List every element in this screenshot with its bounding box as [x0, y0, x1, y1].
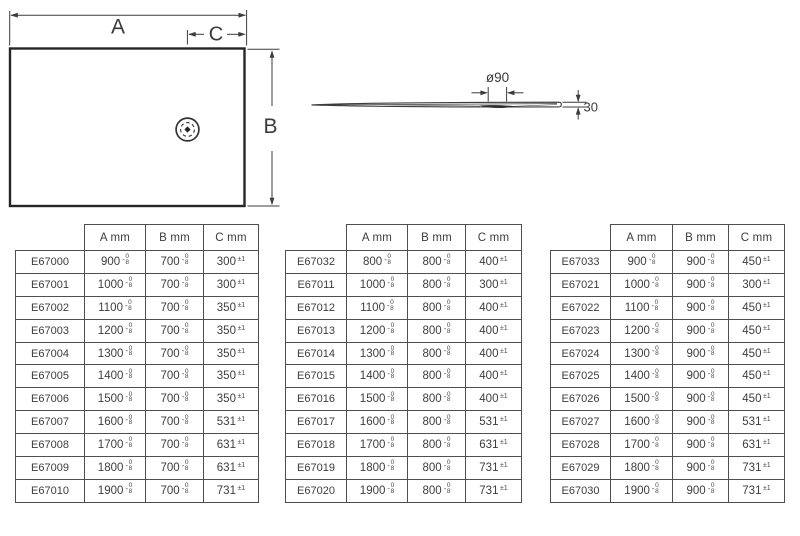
dim-b-value: 800-08 [408, 365, 466, 388]
dim-c-value: 731±1 [729, 479, 785, 502]
tolerance-0-minus-8: -08 [652, 277, 659, 288]
product-code: E67016 [286, 388, 347, 411]
tolerance-0-minus-8: -08 [444, 392, 451, 403]
table-row: E67000900-08700-08300±1 [16, 251, 259, 274]
tolerance-stack: 08 [447, 323, 451, 334]
tolerance-0-minus-8: -08 [384, 254, 391, 265]
tolerance-lower: 8 [447, 374, 451, 380]
dimension-value: 1000 [360, 279, 386, 291]
dimension-table: A mm B mm C mm E67033900-08900-08450±1E6… [550, 224, 785, 503]
tolerance-lower: 8 [655, 306, 659, 312]
table-row: E670231200-08900-08450±1 [551, 319, 785, 342]
tolerance-stack: 08 [391, 277, 395, 288]
product-code: E67009 [16, 457, 85, 480]
tolerance-0-minus-8: -08 [387, 346, 394, 357]
dimension-value: 531 [742, 416, 761, 428]
dim-a-value: 1600-08 [85, 411, 146, 434]
dim-b-value: 900-08 [673, 251, 729, 274]
dimension-value: 1600 [624, 416, 650, 428]
plan-view: A C B [10, 10, 280, 206]
dimension-value: 800 [423, 485, 442, 497]
dim-a-value: 1900-08 [611, 479, 673, 502]
tolerance-0-minus-8: -08 [182, 415, 189, 426]
dim-c-value: 731±1 [466, 479, 522, 502]
product-code: E67005 [16, 365, 85, 388]
dimension-value: 800 [423, 325, 442, 337]
dimension-table-900: A mm B mm C mm E67033900-08900-08450±1E6… [550, 224, 785, 503]
tolerance-stack: 08 [447, 300, 451, 311]
tolerance-0-minus-8: -08 [125, 437, 132, 448]
dim-c-value: 450±1 [729, 319, 785, 342]
dim-c-value: 350±1 [204, 388, 259, 411]
table-row: E670171600-08800-08531±1 [286, 411, 522, 434]
dim-c-value: 731±1 [466, 457, 522, 480]
dimension-value: 1400 [624, 370, 650, 382]
dim-a-value: 1400-08 [611, 365, 673, 388]
tolerance-stack: 08 [447, 483, 451, 494]
dim-b-value: 800-08 [408, 319, 466, 342]
header-b-mm: B mm [673, 225, 729, 251]
tolerance-lower: 8 [447, 466, 451, 472]
dim-c-value: 631±1 [729, 434, 785, 457]
dimension-value: 800 [423, 256, 442, 268]
dim-b-value: 800-08 [408, 273, 466, 296]
dim-b-value: 700-08 [146, 296, 204, 319]
tolerance-plus-minus-1: ±1 [500, 416, 508, 423]
dimension-value: 700 [161, 256, 180, 268]
tolerance-lower: 8 [655, 420, 659, 426]
tolerance-stack: 08 [711, 323, 715, 334]
dimension-value: 300 [742, 279, 761, 291]
tolerance-0-minus-8: -08 [444, 460, 451, 471]
arrowhead-down [270, 198, 275, 206]
dimension-value: 350 [217, 302, 236, 314]
tolerance-stack: 08 [655, 300, 659, 311]
tolerance-0-minus-8: -08 [387, 437, 394, 448]
tolerance-0-minus-8: -08 [125, 369, 132, 380]
dim-b-value: 700-08 [146, 434, 204, 457]
dimension-value: 450 [742, 370, 761, 382]
table-row: E670141300-08800-08400±1 [286, 342, 522, 365]
tolerance-stack: 08 [655, 415, 659, 426]
tolerance-stack: 08 [655, 392, 659, 403]
dimension-value: 900 [101, 256, 120, 268]
dimension-table: A mm B mm C mm E67032800-08800-08400±1E6… [285, 224, 522, 503]
dimension-value: 800 [363, 256, 382, 268]
tolerance-stack: 08 [387, 254, 391, 265]
dimension-value: 631 [217, 439, 236, 451]
dimension-value: 900 [687, 370, 706, 382]
dim-b-value: 800-08 [408, 434, 466, 457]
tolerance-0-minus-8: -08 [182, 300, 189, 311]
dim-a-value: 1200-08 [85, 319, 146, 342]
product-code: E67011 [286, 273, 347, 296]
tolerance-plus-minus-1: ±1 [763, 485, 771, 492]
tolerance-lower: 8 [655, 374, 659, 380]
dim-a-value: 1000-08 [611, 273, 673, 296]
tolerance-0-minus-8: -08 [387, 460, 394, 471]
tolerance-lower: 8 [447, 351, 451, 357]
tolerance-stack: 08 [711, 277, 715, 288]
dim-b-value: 700-08 [146, 251, 204, 274]
tolerance-plus-minus-1: ±1 [237, 370, 245, 377]
dim-a-value: 1800-08 [611, 457, 673, 480]
table-row: E670261500-08900-08450±1 [551, 388, 785, 411]
dimension-value: 700 [161, 416, 180, 428]
dim-b-value: 800-08 [408, 296, 466, 319]
tolerance-0-minus-8: -08 [444, 483, 451, 494]
tolerance-0-minus-8: -08 [182, 483, 189, 494]
dimension-value: 400 [479, 348, 498, 360]
tolerance-plus-minus-1: ±1 [237, 416, 245, 423]
tolerance-stack: 08 [129, 369, 133, 380]
tolerance-plus-minus-1: ±1 [763, 348, 771, 355]
dimension-value: 400 [479, 325, 498, 337]
dimension-value: 1900 [98, 485, 124, 497]
tolerance-0-minus-8: -08 [652, 392, 659, 403]
arrowhead-right [239, 13, 247, 18]
tolerance-plus-minus-1: ±1 [237, 393, 245, 400]
tolerance-0-minus-8: -08 [387, 369, 394, 380]
tolerance-lower: 8 [447, 306, 451, 312]
dimension-value: 700 [161, 348, 180, 360]
tolerance-lower: 8 [185, 489, 189, 495]
dimension-value: 1500 [624, 393, 650, 405]
dim-c-label: C [209, 24, 223, 46]
tolerance-stack: 08 [129, 346, 133, 357]
tolerance-0-minus-8: -08 [444, 346, 451, 357]
dim-c-value: 631±1 [204, 457, 259, 480]
dimension-value: 700 [161, 462, 180, 474]
tolerance-0-minus-8: -08 [652, 483, 659, 494]
header-c-mm: C mm [466, 225, 522, 251]
dim-a-value: 1700-08 [85, 434, 146, 457]
product-code: E67008 [16, 434, 85, 457]
tolerance-stack: 08 [185, 369, 189, 380]
table-row: E670201900-08800-08731±1 [286, 479, 522, 502]
tolerance-lower: 8 [447, 283, 451, 289]
dim-c-value: 300±1 [204, 251, 259, 274]
dim-b-label: B [263, 115, 277, 138]
tolerance-0-minus-8: -08 [444, 437, 451, 448]
table-row: E670121100-08800-08400±1 [286, 296, 522, 319]
dim-c-value: 631±1 [466, 434, 522, 457]
arrowhead-left [507, 90, 515, 95]
table-row: E670241300-08900-08450±1 [551, 342, 785, 365]
dim-c-value: 450±1 [729, 296, 785, 319]
tolerance-0-minus-8: -08 [125, 415, 132, 426]
tolerance-lower: 8 [711, 329, 715, 335]
tolerance-plus-minus-1: ±1 [237, 256, 245, 263]
dim-b-value: 900-08 [673, 296, 729, 319]
product-code: E67032 [286, 251, 347, 274]
dimension-table-800: A mm B mm C mm E67032800-08800-08400±1E6… [285, 224, 522, 503]
product-code: E67002 [16, 296, 85, 319]
dim-drain-diameter [472, 87, 524, 102]
dim-a-value: 1900-08 [85, 479, 146, 502]
tolerance-0-minus-8: -08 [651, 300, 658, 311]
tray-outline [10, 49, 245, 207]
dimension-value: 800 [423, 302, 442, 314]
product-code: E67015 [286, 365, 347, 388]
tolerance-stack: 08 [185, 460, 189, 471]
dimension-value: 900 [687, 302, 706, 314]
dimension-value: 631 [742, 439, 761, 451]
dimension-value: 700 [161, 485, 180, 497]
tolerance-0-minus-8: -08 [125, 346, 132, 357]
tolerance-plus-minus-1: ±1 [500, 279, 508, 286]
dim-c-value: 400±1 [466, 319, 522, 342]
dimension-value: 900 [687, 348, 706, 360]
dim-c-value: 531±1 [204, 411, 259, 434]
dim-c-value: 350±1 [204, 365, 259, 388]
tolerance-lower: 8 [655, 397, 659, 403]
tolerance-lower: 8 [185, 260, 189, 266]
dimension-value: 900 [687, 393, 706, 405]
tolerance-plus-minus-1: ±1 [763, 439, 771, 446]
tolerance-stack: 08 [711, 300, 715, 311]
dimension-value: 531 [217, 416, 236, 428]
tolerance-lower: 8 [129, 466, 133, 472]
dimension-value: 900 [687, 325, 706, 337]
tolerance-stack: 08 [711, 392, 715, 403]
dimension-value: 400 [479, 302, 498, 314]
table-row: E670151400-08800-08400±1 [286, 365, 522, 388]
header-c-mm: C mm [729, 225, 785, 251]
dimension-value: 1700 [98, 439, 124, 451]
dimension-value: 1500 [360, 393, 386, 405]
tolerance-plus-minus-1: ±1 [500, 370, 508, 377]
tolerance-plus-minus-1: ±1 [500, 393, 508, 400]
header-c-mm: C mm [204, 225, 259, 251]
tolerance-plus-minus-1: ±1 [763, 256, 771, 263]
tolerance-0-minus-8: -08 [182, 346, 189, 357]
tolerance-lower: 8 [129, 283, 133, 289]
tolerance-plus-minus-1: ±1 [500, 439, 508, 446]
dim-b-value: 900-08 [673, 457, 729, 480]
tolerance-plus-minus-1: ±1 [237, 302, 245, 309]
dim-b-value: 800-08 [408, 411, 466, 434]
tolerance-stack: 08 [391, 346, 395, 357]
tolerance-stack: 08 [652, 254, 656, 265]
tolerance-lower: 8 [711, 443, 715, 449]
tolerance-0-minus-8: -08 [125, 323, 132, 334]
tolerance-0-minus-8: -08 [182, 254, 189, 265]
tolerance-lower: 8 [711, 306, 715, 312]
tolerance-stack: 08 [447, 369, 451, 380]
dim-b-value: 700-08 [146, 479, 204, 502]
tolerance-lower: 8 [128, 306, 132, 312]
tolerance-0-minus-8: -08 [125, 277, 132, 288]
dimension-value: 1900 [624, 485, 650, 497]
tolerance-lower: 8 [125, 260, 129, 266]
tolerance-plus-minus-1: ±1 [500, 256, 508, 263]
dimension-value: 900 [687, 279, 706, 291]
dim-a-value: 1500-08 [347, 388, 408, 411]
tolerance-0-minus-8: -08 [387, 323, 394, 334]
tolerance-lower: 8 [185, 443, 189, 449]
tolerance-plus-minus-1: ±1 [500, 325, 508, 332]
tolerance-lower: 8 [711, 260, 715, 266]
dimension-value: 1800 [624, 462, 650, 474]
dim-a-value: 900-08 [611, 251, 673, 274]
tolerance-lower: 8 [185, 420, 189, 426]
dim-c-value: 731±1 [729, 457, 785, 480]
dim-b-value: 700-08 [146, 342, 204, 365]
tolerance-plus-minus-1: ±1 [237, 462, 245, 469]
dimension-value: 1500 [98, 393, 124, 405]
dim-a-value: 1900-08 [347, 479, 408, 502]
header-a-mm: A mm [347, 225, 408, 251]
tolerance-lower: 8 [185, 374, 189, 380]
table-row: E670101900-08700-08731±1 [16, 479, 259, 502]
dimension-value: 700 [161, 439, 180, 451]
arrowhead-up [576, 107, 581, 115]
dim-a-value: 1100-08 [85, 296, 146, 319]
header-b-mm: B mm [408, 225, 466, 251]
tolerance-0-minus-8: -08 [708, 300, 715, 311]
dimension-table-700: A mm B mm C mm E67000900-08700-08300±1E6… [15, 224, 259, 503]
tolerance-0-minus-8: -08 [125, 392, 132, 403]
dimension-value: 1800 [360, 462, 386, 474]
tolerance-lower: 8 [391, 420, 395, 426]
dim-a-value: 1300-08 [85, 342, 146, 365]
tolerance-lower: 8 [447, 420, 451, 426]
tolerance-0-minus-8: -08 [708, 254, 715, 265]
dim-c-value: 450±1 [729, 388, 785, 411]
dim-c-value: 300±1 [729, 273, 785, 296]
tolerance-lower: 8 [387, 260, 391, 266]
dim-b-value: 800-08 [408, 479, 466, 502]
tolerance-stack: 08 [711, 483, 715, 494]
dim-c-value: 731±1 [204, 479, 259, 502]
tolerance-lower: 8 [390, 306, 394, 312]
tolerance-plus-minus-1: ±1 [237, 439, 245, 446]
tolerance-stack: 08 [447, 392, 451, 403]
dimension-value: 300 [217, 279, 236, 291]
dimension-value: 450 [742, 348, 761, 360]
dim-b-value: 900-08 [673, 434, 729, 457]
product-code: E67013 [286, 319, 347, 342]
dim-c-value: 450±1 [729, 251, 785, 274]
tolerance-lower: 8 [391, 329, 395, 335]
product-code: E67023 [551, 319, 611, 342]
dim-b-value: 900-08 [673, 342, 729, 365]
dim-c-value: 450±1 [729, 365, 785, 388]
table-row: E67033900-08900-08450±1 [551, 251, 785, 274]
table-row: E670031200-08700-08350±1 [16, 319, 259, 342]
tolerance-0-minus-8: -08 [444, 254, 451, 265]
tolerance-stack: 08 [655, 437, 659, 448]
tolerance-plus-minus-1: ±1 [763, 325, 771, 332]
dimension-value: 1400 [98, 370, 124, 382]
tolerance-lower: 8 [129, 329, 133, 335]
tolerance-lower: 8 [129, 351, 133, 357]
tolerance-stack: 08 [655, 277, 659, 288]
tolerance-stack: 08 [447, 437, 451, 448]
dim-a-value: 1400-08 [347, 365, 408, 388]
tolerance-stack: 08 [711, 254, 715, 265]
arrowhead-right [480, 90, 488, 95]
tolerance-stack: 08 [447, 254, 451, 265]
table-row: E670011000-08700-08300±1 [16, 273, 259, 296]
dimension-value: 1600 [360, 416, 386, 428]
tolerance-stack: 08 [391, 369, 395, 380]
shower-tray-spec-sheet: A C B [0, 0, 800, 536]
product-code: E67024 [551, 342, 611, 365]
tolerance-stack: 08 [129, 323, 133, 334]
tolerance-lower: 8 [391, 351, 395, 357]
tolerance-stack: 08 [391, 437, 395, 448]
tolerance-lower: 8 [655, 489, 659, 495]
tolerance-plus-minus-1: ±1 [763, 416, 771, 423]
tolerance-plus-minus-1: ±1 [500, 462, 508, 469]
arrowhead-up [270, 50, 275, 58]
dim-c-value: 531±1 [466, 411, 522, 434]
tolerance-stack: 08 [391, 415, 395, 426]
tolerance-stack: 08 [129, 277, 133, 288]
tolerance-0-minus-8: -08 [387, 415, 394, 426]
tolerance-plus-minus-1: ±1 [237, 348, 245, 355]
tolerance-lower: 8 [391, 443, 395, 449]
tolerance-stack: 08 [128, 300, 132, 311]
dimension-value: 800 [423, 439, 442, 451]
tolerance-0-minus-8: -08 [387, 277, 394, 288]
tolerance-stack: 08 [655, 323, 659, 334]
tolerance-plus-minus-1: ±1 [500, 348, 508, 355]
dim-a-value: 1100-08 [347, 296, 408, 319]
dimension-table: A mm B mm C mm E67000900-08700-08300±1E6… [15, 224, 259, 503]
product-code: E67007 [16, 411, 85, 434]
dimension-value: 1700 [624, 439, 650, 451]
dim-a-value: 900-08 [85, 251, 146, 274]
tolerance-lower: 8 [129, 489, 133, 495]
tolerance-0-minus-8: -08 [652, 415, 659, 426]
dim-c-value: 300±1 [466, 273, 522, 296]
dim-a-value: 1400-08 [85, 365, 146, 388]
tolerance-0-minus-8: -08 [652, 460, 659, 471]
dimension-value: 731 [742, 462, 761, 474]
tolerance-lower: 8 [391, 466, 395, 472]
product-code: E67004 [16, 342, 85, 365]
dimension-value: 450 [742, 325, 761, 337]
tolerance-0-minus-8: -08 [182, 369, 189, 380]
tolerance-0-minus-8: -08 [444, 323, 451, 334]
tolerance-stack: 08 [390, 300, 394, 311]
dimension-value: 900 [628, 256, 647, 268]
dim-c-value: 400±1 [466, 251, 522, 274]
product-code: E67003 [16, 319, 85, 342]
tolerance-plus-minus-1: ±1 [763, 462, 771, 469]
tolerance-0-minus-8: -08 [708, 323, 715, 334]
product-code: E67018 [286, 434, 347, 457]
thickness-label: 30 [584, 100, 598, 115]
table-row: E670091800-08700-08631±1 [16, 457, 259, 480]
tolerance-0-minus-8: -08 [182, 323, 189, 334]
tolerance-0-minus-8: -08 [444, 369, 451, 380]
tolerance-lower: 8 [711, 283, 715, 289]
dimension-value: 1300 [624, 348, 650, 360]
tolerance-stack: 08 [711, 346, 715, 357]
dimension-value: 1200 [360, 325, 386, 337]
dim-a-value: 1100-08 [611, 296, 673, 319]
dimension-value: 1700 [360, 439, 386, 451]
tolerance-stack: 08 [391, 323, 395, 334]
tolerance-lower: 8 [391, 489, 395, 495]
dimension-value: 731 [479, 485, 498, 497]
dim-b-value: 700-08 [146, 388, 204, 411]
dim-b-value: 700-08 [146, 319, 204, 342]
